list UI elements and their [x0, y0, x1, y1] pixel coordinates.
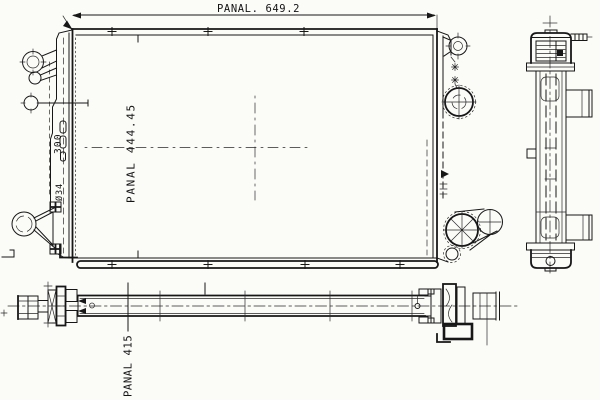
- filler-boss-circle: [23, 52, 44, 73]
- mount-hole-leader: [38, 100, 88, 106]
- dim-offset-label: 300: [53, 133, 64, 154]
- core-center-marks: PANAL 444.45: [85, 96, 312, 203]
- dim-depth-label: PANAL 415: [123, 335, 135, 397]
- left-pin-circle: [90, 303, 95, 308]
- overflow-stub: [571, 34, 587, 41]
- filler-boss-ticks: [20, 49, 46, 75]
- filler-boss: [20, 49, 57, 75]
- mount-boss-ticks: [446, 33, 470, 59]
- left-arrow-2: [78, 308, 86, 314]
- right-tank-outline: [437, 31, 451, 55]
- bottom-core-bar: [78, 283, 428, 323]
- side-bottom-tank: [531, 250, 571, 271]
- star-mark-1: [452, 64, 459, 71]
- filler-boss-inner: [27, 56, 39, 68]
- dimension-arrow-left: [72, 13, 81, 19]
- small-boss-circle: [29, 72, 41, 84]
- mount-hole-left: [21, 93, 88, 113]
- left-stack-3a: [66, 290, 77, 302]
- right-stack-3: [457, 287, 465, 324]
- inlet-port: [442, 85, 476, 119]
- radiator-drawing: PANAL. 649.2 PANAL 444.45: [0, 0, 600, 400]
- bottom-right-assembly: [425, 284, 500, 345]
- bracket-hole-inner: [16, 216, 32, 232]
- dim-port-diameter-label: Ø34: [54, 183, 65, 201]
- left-stack-3b: [66, 311, 77, 323]
- mounting-bracket-lower-left: [2, 197, 77, 258]
- side-top-tank: [531, 30, 592, 63]
- small-boss-arms: [41, 68, 57, 81]
- hose-connector-lower: [566, 215, 592, 240]
- left-arrow-1: [78, 298, 86, 304]
- left-plus-marks: [1, 282, 52, 327]
- mount-boss-top-right: [443, 33, 470, 59]
- bar-notch-bottom: [419, 317, 428, 323]
- hose-connector-upper-body: [566, 90, 592, 117]
- dimension-top-width: PANAL. 649.2: [63, 3, 437, 30]
- top-tank-plug: [557, 50, 563, 56]
- hose-connector-lower-body: [566, 215, 592, 240]
- flow-arrow: [441, 170, 449, 178]
- right-tank: [437, 31, 503, 263]
- mount-hole-circle: [24, 96, 38, 110]
- dim-top-width-label: PANAL. 649.2: [217, 3, 300, 15]
- side-left-tab: [527, 149, 536, 158]
- centerline-ticks-mid: [545, 148, 556, 179]
- lower-flange: [527, 243, 575, 250]
- side-body: [527, 71, 566, 243]
- body-hidden-lines: [546, 74, 556, 240]
- bracket-pad-top-cross: [51, 203, 60, 212]
- bottom-view: PANAL 415: [1, 282, 520, 397]
- right-stack-2: [443, 284, 456, 326]
- dim-core-height-label: PANAL 444.45: [125, 103, 138, 203]
- left-stack-1-hatch: [48, 290, 56, 323]
- boss-links: [451, 57, 457, 88]
- outlet-port: [444, 212, 481, 249]
- bracket-hole: [12, 212, 36, 236]
- front-view: PANAL. 649.2 PANAL 444.45: [2, 3, 503, 269]
- mount-boss-inner: [454, 42, 463, 51]
- dimension-depth: PANAL 415: [123, 283, 135, 397]
- drawing-canvas: PANAL. 649.2 PANAL 444.45: [0, 0, 600, 400]
- bottom-left-assembly: [1, 282, 95, 327]
- dimension-arrow-right: [427, 13, 436, 19]
- right-stack-2-curves: [446, 289, 452, 322]
- hose-connector-upper: [566, 90, 592, 117]
- star-mark-2: [452, 77, 459, 84]
- bar-notch-top: [419, 289, 428, 295]
- side-view: [527, 16, 593, 274]
- drain-boss-circle: [446, 248, 458, 260]
- bottom-tank-bar: [77, 261, 438, 268]
- right-corner-line: [437, 258, 448, 262]
- mount-boss-circle: [449, 37, 467, 55]
- far-left-tab: [2, 250, 14, 257]
- left-tank: 300 Ø34: [2, 30, 88, 258]
- corner-arrow: [63, 21, 73, 30]
- bracket-right-crosshair: [479, 210, 501, 234]
- tank-rib-1: [60, 121, 66, 133]
- left-stack-2-lines: [57, 296, 66, 316]
